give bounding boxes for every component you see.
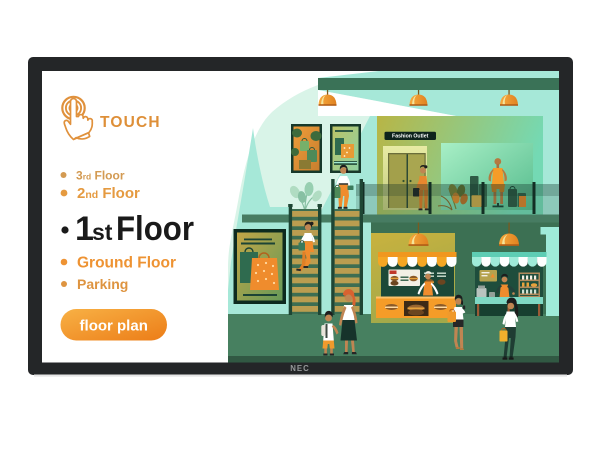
- svg-text:TOUCH: TOUCH: [100, 114, 161, 131]
- svg-text:floor plan: floor plan: [80, 318, 148, 335]
- svg-text:Ground Floor: Ground Floor: [77, 255, 176, 272]
- svg-text:Floor: Floor: [116, 210, 194, 248]
- svg-text:3rd Floor: 3rd Floor: [76, 169, 125, 183]
- svg-text:Parking: Parking: [77, 276, 128, 292]
- svg-text:NEC: NEC: [290, 364, 309, 373]
- svg-text:st: st: [92, 219, 113, 245]
- svg-text:Fashion Outlet: Fashion Outlet: [392, 134, 429, 140]
